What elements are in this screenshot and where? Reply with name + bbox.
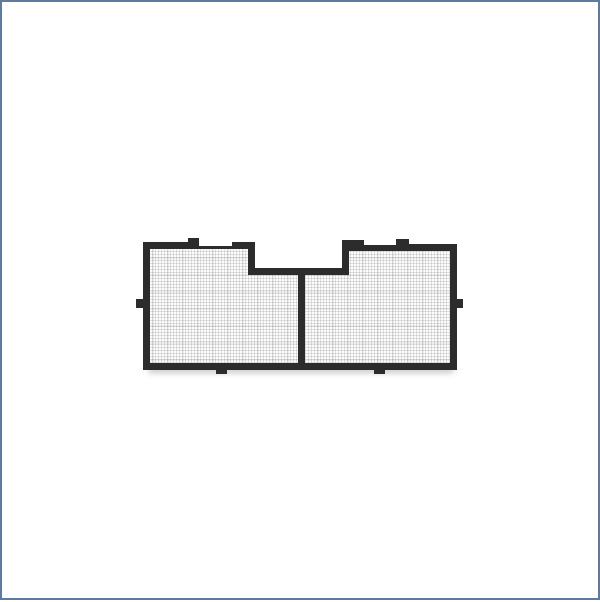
product-image-canvas — [0, 0, 600, 600]
screen-frame — [2, 2, 600, 602]
frame-path — [136, 238, 463, 374]
mesh-screen-image — [2, 2, 600, 602]
